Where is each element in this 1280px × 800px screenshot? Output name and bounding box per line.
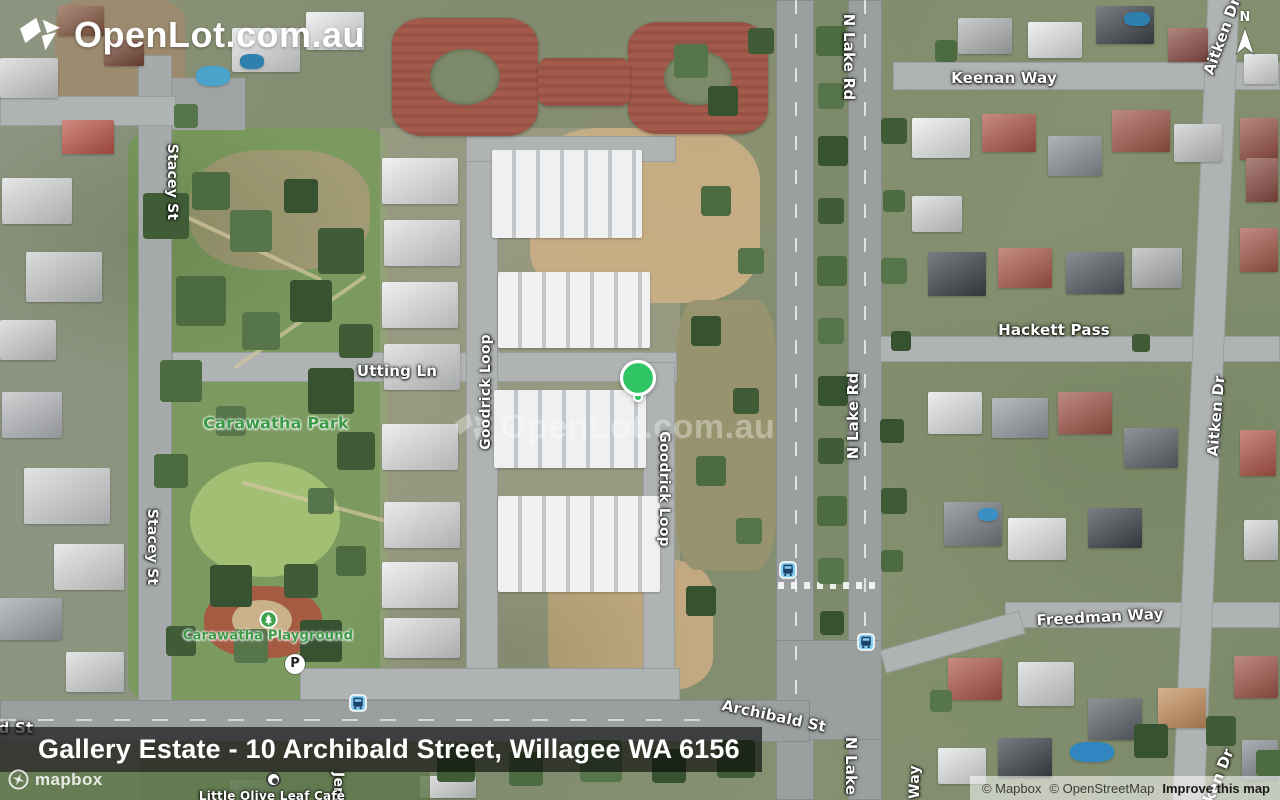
building-roof [1066, 252, 1124, 294]
street-label: N Lake Rd [844, 373, 862, 460]
openlot-logo: OpenLot.com.au [16, 14, 365, 56]
building-roof [26, 252, 102, 302]
building-roof [62, 120, 114, 154]
building-roof [1088, 698, 1142, 740]
cafe-icon [266, 772, 281, 787]
road-aitken-dr [1172, 0, 1240, 800]
bus-stop-icon [857, 633, 875, 656]
building-roof [0, 598, 62, 640]
building-roof [958, 18, 1012, 54]
building-roof [384, 220, 460, 266]
map-canvas[interactable]: Stacey StStacey StUtting LnGoodrick Loop… [0, 0, 1280, 800]
openlot-bird-icon [16, 16, 62, 54]
compass-n-label: N [1232, 10, 1258, 25]
building-roof [1058, 392, 1112, 434]
street-label: Goodrick Loop [656, 431, 672, 547]
location-marker[interactable] [618, 359, 658, 405]
compass: N [1232, 10, 1258, 61]
building-roof [196, 66, 230, 86]
improve-this-map-link[interactable]: Improve this map [1162, 781, 1270, 796]
building-roof [1088, 508, 1142, 548]
street-label: Stacey St [144, 509, 160, 586]
building-roof [978, 508, 998, 521]
mapbox-icon [8, 769, 29, 790]
building-roof [982, 114, 1036, 152]
estate-title-text: Gallery Estate - 10 Archibald Street, Wi… [38, 734, 740, 765]
watermark: OpenLot.com.au [452, 408, 775, 447]
building-roof [948, 658, 1002, 700]
courtyard [664, 51, 731, 105]
attribution-bar: © Mapbox © OpenStreetMap Improve this ma… [970, 776, 1280, 800]
building-roof [1240, 228, 1278, 272]
openlot-bird-icon [452, 412, 490, 444]
building-roof [24, 468, 110, 524]
logo-text: OpenLot.com.au [74, 14, 365, 56]
building-roof [382, 158, 458, 204]
street-label: Stacey St [164, 144, 180, 221]
lane-line [864, 0, 866, 640]
building-roof [382, 282, 458, 328]
building-roof [998, 248, 1052, 288]
park-label: Carawatha Playground [183, 629, 353, 644]
street-label: Keenan Way [951, 69, 1057, 87]
building-roof [1240, 430, 1276, 476]
building-roof [1070, 742, 1114, 762]
watermark-text: OpenLot.com.au [500, 408, 775, 447]
building-roof [1244, 520, 1278, 560]
building-roof [2, 392, 62, 438]
townhouse-row [498, 272, 650, 348]
building-roof [998, 738, 1052, 778]
building-roof [54, 544, 124, 590]
lane-line [795, 0, 797, 700]
building-roof [1048, 136, 1102, 176]
building-roof [1008, 518, 1066, 560]
building-roof [992, 398, 1048, 438]
building-roof [1234, 656, 1278, 698]
building-roof [1240, 118, 1278, 160]
estate-title-bar: Gallery Estate - 10 Archibald Street, Wi… [0, 727, 762, 772]
building-roof [2, 178, 72, 224]
building-roof [912, 196, 962, 232]
townhouse-row [498, 496, 660, 592]
building-roof [384, 502, 460, 548]
park-label: Carawatha Park [203, 414, 349, 433]
parking-icon: P [285, 654, 305, 674]
north-arrow-icon [1234, 26, 1256, 56]
bus-stop-icon [779, 561, 797, 584]
park-lawn [190, 462, 340, 577]
building-roof [1018, 662, 1074, 706]
building-roof [240, 54, 264, 69]
building-roof [1174, 124, 1222, 162]
building-roof [912, 118, 970, 158]
osm-copyright-link[interactable]: © OpenStreetMap [1049, 781, 1154, 796]
building-roof [0, 320, 56, 360]
park-scrub [190, 150, 370, 270]
building-roof [1124, 12, 1150, 26]
building-roof [928, 392, 982, 434]
townhouse-row [492, 150, 642, 238]
building-roof [1124, 428, 1178, 468]
building-roof [1132, 248, 1182, 288]
building-complex-roof [392, 18, 538, 136]
building-roof [1158, 688, 1206, 728]
mapbox-logo[interactable]: mapbox [8, 769, 103, 790]
building-roof [382, 424, 458, 470]
street-label: Hackett Pass [998, 321, 1110, 339]
street-label: N Lake Rd [840, 14, 858, 101]
street-label: Utting Ln [357, 362, 437, 380]
building-roof [0, 58, 58, 98]
street-label: Little Olive Leaf Cafe [199, 789, 345, 800]
building-roof [928, 252, 986, 296]
building-roof [1242, 740, 1278, 780]
building-complex-roof [538, 58, 630, 106]
building-roof [1112, 110, 1170, 152]
courtyard [430, 49, 500, 106]
building-roof [66, 652, 124, 692]
building-roof [1246, 158, 1278, 202]
street-label: Way [907, 765, 923, 799]
street-label: N Lake [842, 737, 860, 795]
building-roof [1168, 28, 1208, 62]
building-roof [1028, 22, 1082, 58]
building-roof [384, 618, 460, 658]
building-roof [382, 562, 458, 608]
lane-line [0, 719, 700, 721]
building-complex-roof [628, 22, 768, 134]
mapbox-wordmark: mapbox [35, 770, 103, 790]
bus-stop-icon [349, 694, 367, 717]
mapbox-copyright-link[interactable]: © Mapbox [982, 781, 1041, 796]
